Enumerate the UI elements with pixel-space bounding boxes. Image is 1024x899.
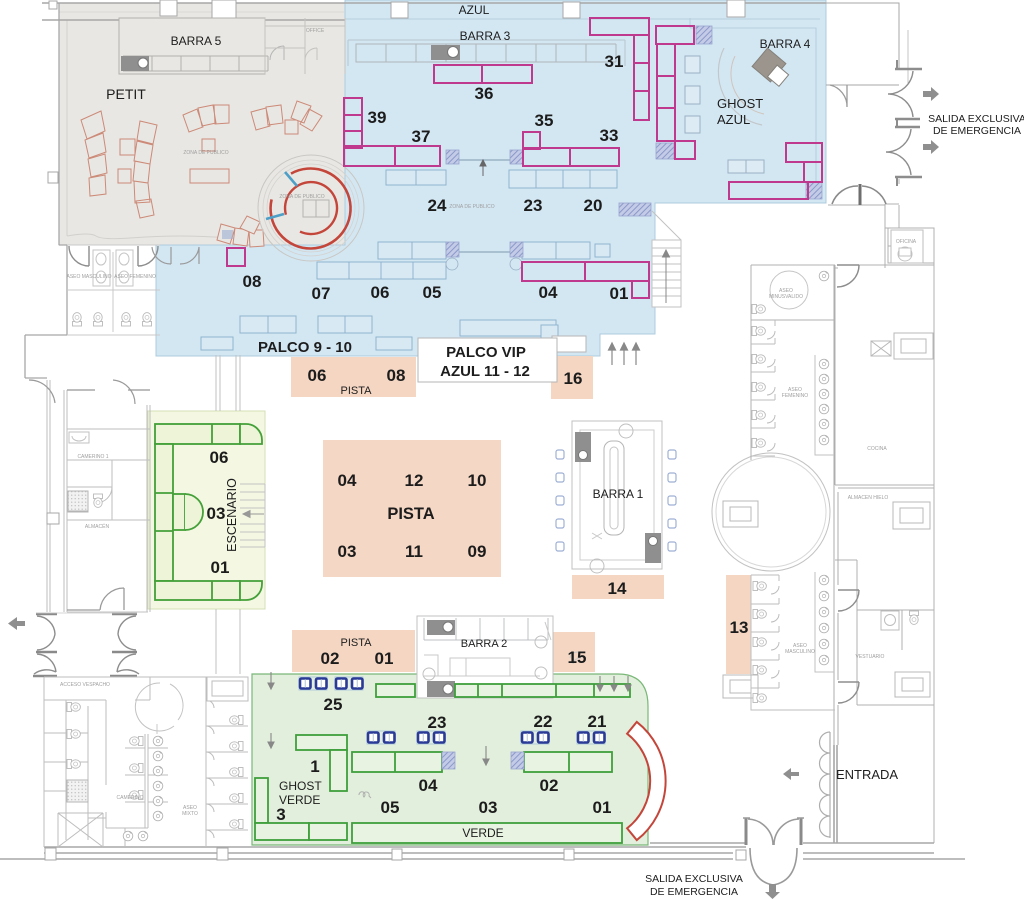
svg-text:DE EMERGENCIA: DE EMERGENCIA [933,125,1021,137]
svg-text:BARRA 1: BARRA 1 [593,487,644,501]
svg-text:MASCULINO: MASCULINO [785,649,815,655]
svg-text:VERDE: VERDE [462,826,503,840]
svg-text:09: 09 [468,542,487,561]
svg-text:13: 13 [730,618,749,637]
svg-text:PALCO VIP: PALCO VIP [446,344,526,361]
svg-text:3: 3 [276,805,285,824]
svg-text:ASEO MASCULINO: ASEO MASCULINO [66,274,111,280]
svg-text:03: 03 [207,504,226,523]
svg-text:ZONA DE PUBLICO: ZONA DE PUBLICO [449,204,494,210]
svg-text:AZUL 11 - 12: AZUL 11 - 12 [440,363,530,380]
svg-text:31: 31 [605,52,624,71]
svg-text:20: 20 [584,196,603,215]
svg-text:OFFICE: OFFICE [306,28,325,34]
svg-text:PETIT: PETIT [106,86,146,102]
svg-text:33: 33 [600,126,619,145]
svg-text:03: 03 [338,542,357,561]
svg-text:AZUL: AZUL [717,112,750,127]
svg-text:GHOST: GHOST [717,96,763,111]
svg-text:14: 14 [608,579,627,598]
svg-text:1: 1 [310,757,319,776]
svg-text:15: 15 [568,648,587,667]
svg-text:ASEO FEMENINO: ASEO FEMENINO [114,274,156,280]
svg-text:16: 16 [564,369,583,388]
svg-text:01: 01 [593,798,612,817]
svg-text:SALIDA EXCLUSIVA: SALIDA EXCLUSIVA [645,873,743,885]
svg-text:BARRA 4: BARRA 4 [760,37,811,51]
svg-text:VESTUARIO: VESTUARIO [856,654,885,660]
svg-text:04: 04 [338,471,357,490]
svg-text:PISTA: PISTA [341,385,373,397]
svg-text:24: 24 [428,196,447,215]
svg-text:SALIDA EXCLUSIVA: SALIDA EXCLUSIVA [928,113,1024,125]
svg-text:ESCENARIO: ESCENARIO [225,478,239,552]
svg-text:25: 25 [324,695,343,714]
svg-text:ZONA DE PUBLICO: ZONA DE PUBLICO [279,194,324,200]
svg-text:01: 01 [375,649,394,668]
svg-text:PISTA: PISTA [387,505,434,523]
svg-text:01: 01 [211,558,230,577]
svg-text:05: 05 [381,798,400,817]
svg-text:01: 01 [610,284,629,303]
svg-text:PALCO 9 - 10: PALCO 9 - 10 [258,339,352,356]
svg-text:ZONA DE PUBLICO: ZONA DE PUBLICO [183,150,228,156]
svg-text:02: 02 [540,776,559,795]
svg-text:02: 02 [321,649,340,668]
svg-text:BARRA 5: BARRA 5 [171,34,222,48]
svg-text:04: 04 [539,283,558,302]
svg-text:07: 07 [312,284,331,303]
svg-text:GHOST: GHOST [279,779,322,793]
svg-text:39: 39 [368,108,387,127]
svg-text:AZUL: AZUL [459,3,490,17]
svg-text:CAMERINO 1: CAMERINO 1 [77,454,108,460]
svg-text:37: 37 [412,127,431,146]
svg-text:08: 08 [387,366,406,385]
svg-text:04: 04 [419,776,438,795]
svg-text:10: 10 [468,471,487,490]
svg-text:23: 23 [524,196,543,215]
svg-text:08: 08 [243,272,262,291]
svg-text:05: 05 [423,283,442,302]
svg-text:MINUSVALIDO: MINUSVALIDO [769,294,803,300]
svg-text:23: 23 [428,713,447,732]
svg-text:COCINA: COCINA [867,446,887,452]
svg-text:CAMERINO: CAMERINO [117,795,144,801]
svg-text:BARRA 3: BARRA 3 [460,29,511,43]
svg-text:21: 21 [588,712,607,731]
svg-text:ENTRADA: ENTRADA [836,767,898,782]
svg-text:06: 06 [371,283,390,302]
svg-text:35: 35 [535,111,554,130]
svg-text:ALMACÉN: ALMACÉN [85,523,110,530]
svg-text:OFICINA: OFICINA [896,239,917,245]
svg-text:DE EMERGENCIA: DE EMERGENCIA [650,886,738,898]
svg-text:11: 11 [405,542,423,561]
svg-text:PISTA: PISTA [341,637,373,649]
svg-text:BARRA 2: BARRA 2 [461,638,507,650]
svg-text:06: 06 [308,366,327,385]
svg-text:MIXTO: MIXTO [182,811,198,817]
svg-text:FEMENINO: FEMENINO [782,393,809,399]
svg-text:ALMACEN HIELO: ALMACEN HIELO [848,495,889,501]
svg-text:12: 12 [405,471,424,490]
svg-text:36: 36 [475,84,494,103]
svg-text:22: 22 [534,712,553,731]
svg-text:06: 06 [210,448,229,467]
svg-text:03: 03 [479,798,498,817]
svg-text:ACCESO VESPACHO: ACCESO VESPACHO [60,682,110,688]
